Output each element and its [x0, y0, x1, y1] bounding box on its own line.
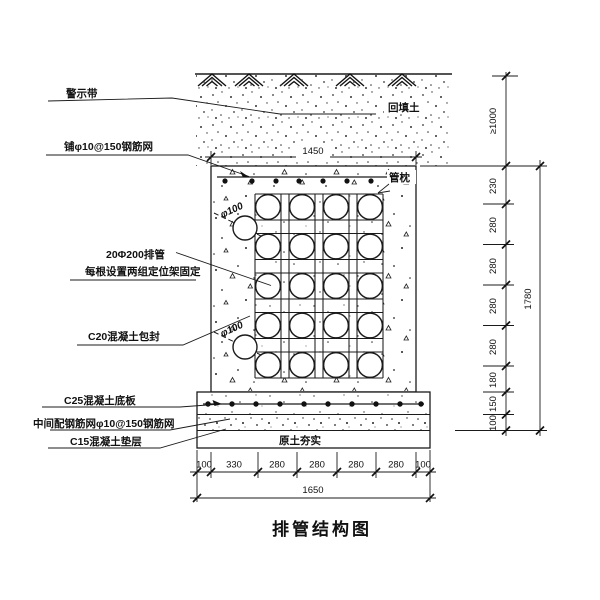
pipe-grid: [255, 194, 383, 378]
c20-encase-label: C20混凝土包封: [88, 330, 160, 343]
dim-bottom-seg-4: 280: [309, 460, 325, 471]
mid-mesh-label: 中间配钢筋网φ10@150钢筋网: [33, 417, 174, 430]
dim-bottom-seg-3: 280: [269, 460, 285, 471]
pipes-note-label: 每根设置两组定位架固定: [85, 265, 201, 278]
pipe-pillow-label: 管枕: [389, 171, 410, 184]
pipes-label: 20Φ200排管: [106, 248, 165, 261]
dim-bottom-total-value: 1650: [302, 485, 323, 496]
compacted-soil-label: 原土夯实: [279, 434, 321, 447]
dim-bottom-seg-2: 330: [226, 460, 242, 471]
annotation-labels: 警示带 铺φ10@150钢筋网 20Φ200排管 每根设置两组定位架固定 C20…: [33, 87, 201, 448]
dim-right-seg-5: 280: [488, 339, 499, 355]
dim-right-seg-7: 150: [488, 396, 499, 412]
warning-tape-label: 警示带: [65, 87, 98, 100]
backfill-callout: 回填土: [384, 98, 427, 114]
dim-right-seg-4: 280: [488, 298, 499, 314]
dim-right-total-value: 1780: [523, 288, 534, 309]
drawing-title: 排管结构图: [272, 519, 372, 539]
dim-right-seg-8: 100: [488, 415, 499, 431]
dim-right-seg-6: 180: [488, 372, 499, 388]
dim-bottom-seg-5: 280: [348, 460, 364, 471]
c15-cushion-label: C15混凝土垫层: [70, 435, 142, 448]
structure-diagram-canvas: φ100 φ100 管枕 回填土 原土夯实: [0, 0, 600, 600]
top-mesh-label: 铺φ10@150钢筋网: [64, 140, 153, 153]
base-slab: 原土夯实: [197, 392, 430, 448]
backfill-label: 回填土: [388, 101, 420, 114]
dim-right-seg-2: 280: [488, 217, 499, 233]
c25-slab-label: C25混凝土底板: [64, 394, 136, 407]
dim-right-seg-3: 280: [488, 258, 499, 274]
dim-depth-min-value: ≥1000: [488, 108, 499, 134]
dim-bottom-seg-6: 280: [388, 460, 404, 471]
dim-right-seg-1: 230: [488, 178, 499, 194]
dim-top-width-value: 1450: [302, 146, 323, 157]
dim-bottom: 100 330 280 280 280 280 100 1650: [190, 450, 436, 502]
drawing-page: φ100 φ100 管枕 回填土 原土夯实: [0, 0, 600, 600]
dim-bottom-seg-7: 100: [415, 460, 431, 471]
dim-bottom-seg-1: 100: [196, 460, 212, 471]
